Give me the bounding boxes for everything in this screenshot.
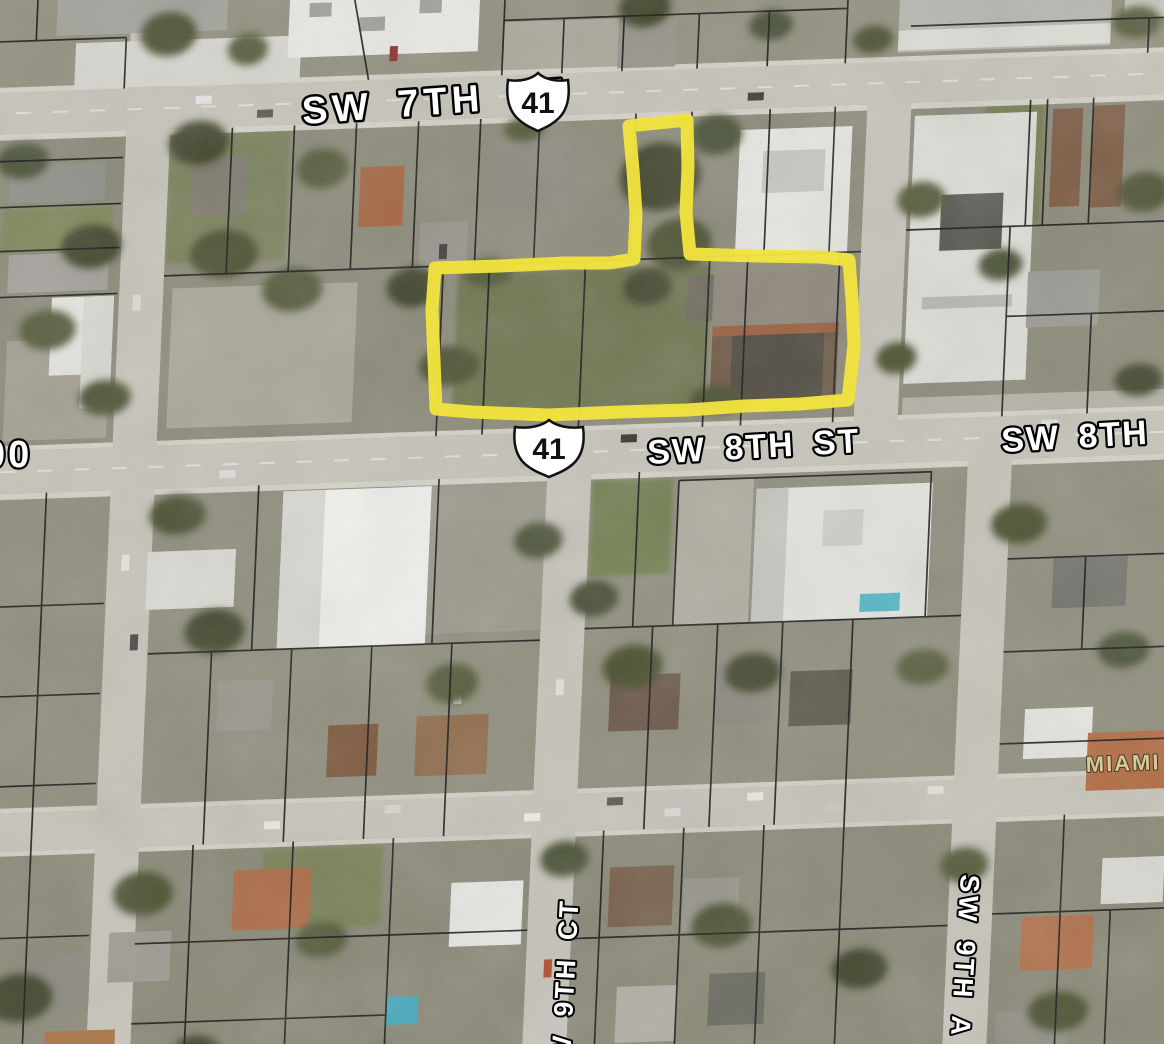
svg-text:41: 41 (521, 87, 554, 120)
svg-text:41: 41 (532, 433, 565, 466)
street-label-left-partial: 00 (0, 434, 32, 476)
map-viewport[interactable]: SW 7TH ST 41 41 SW 8TH ST SW 8TH S 00 MI… (0, 0, 1164, 1044)
aerial-map[interactable]: SW 7TH ST 41 41 SW 8TH ST SW 8TH S 00 MI… (0, 0, 1164, 1044)
city-boundary-label-miami: MIAMI (1085, 749, 1161, 777)
grain-overlay (0, 0, 1164, 1044)
